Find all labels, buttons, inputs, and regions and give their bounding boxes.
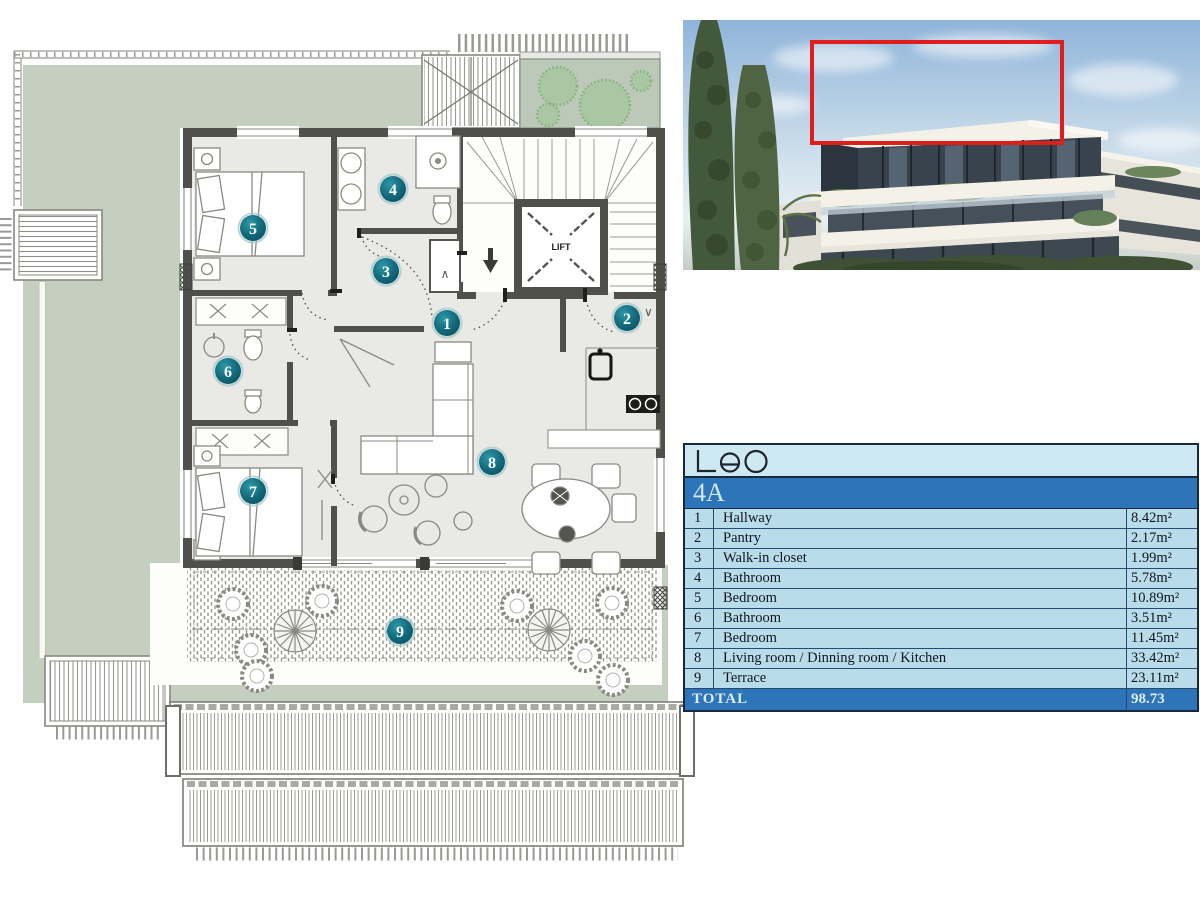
- room-name: Bedroom: [714, 629, 1126, 648]
- room-area: 11.45m²: [1126, 629, 1197, 648]
- room-area: 1.99m²: [1126, 549, 1197, 568]
- room-name: Pantry: [714, 529, 1126, 548]
- garden-path: [39, 282, 46, 658]
- total-row: TOTAL 98.73: [685, 689, 1197, 710]
- room-number: 7: [685, 629, 714, 648]
- room-number: 1: [685, 509, 714, 528]
- table-row: 9Terrace23.11m²: [685, 669, 1197, 689]
- table-row: 5Bedroom10.89m²: [685, 589, 1197, 609]
- building-photo: [683, 20, 1200, 270]
- room-number: 4: [685, 569, 714, 588]
- room-number: 2: [685, 529, 714, 548]
- table-row: 2Pantry2.17m²: [685, 529, 1197, 549]
- room-area: 33.42m²: [1126, 649, 1197, 668]
- room-name: Bedroom: [714, 589, 1126, 608]
- svg-text:4: 4: [389, 182, 397, 199]
- room-marker-3: 3: [372, 257, 401, 286]
- room-rows: 1Hallway8.42m²2Pantry2.17m²3Walk-in clos…: [685, 509, 1197, 689]
- room-area: 23.11m²: [1126, 669, 1197, 688]
- room-marker-6: 6: [214, 357, 243, 386]
- pantry-glyph: ∨: [644, 305, 653, 319]
- room-name: Terrace: [714, 669, 1126, 688]
- room-number: 5: [685, 589, 714, 608]
- table-row: 3Walk-in closet1.99m²: [685, 549, 1197, 569]
- svg-text:9: 9: [396, 624, 404, 641]
- lift: LIFT: [518, 203, 604, 291]
- room-name: Living room / Dinning room / Kitchen: [714, 649, 1126, 668]
- floor-plan: LIFT: [0, 0, 700, 900]
- svg-text:7: 7: [249, 484, 257, 501]
- unit-label-text: 4A: [693, 478, 725, 507]
- svg-text:1: 1: [443, 316, 451, 333]
- area-table: 4A 1Hallway8.42m²2Pantry2.17m²3Walk-in c…: [683, 443, 1199, 712]
- svg-text:2: 2: [623, 311, 631, 328]
- top-planter: [520, 52, 660, 130]
- room-marker-7: 7: [239, 477, 268, 506]
- room-number: 9: [685, 669, 714, 688]
- room-name: Bathroom: [714, 609, 1126, 628]
- room-name: Bathroom: [714, 569, 1126, 588]
- room-marker-1: 1: [433, 309, 462, 338]
- table-row: 4Bathroom5.78m²: [685, 569, 1197, 589]
- pergola-upper: [166, 702, 694, 776]
- table-row: 6Bathroom3.51m²: [685, 609, 1197, 629]
- total-label: TOTAL: [685, 689, 1126, 710]
- room-area: 10.89m²: [1126, 589, 1197, 608]
- left-deck: [5, 210, 102, 280]
- unit-label: 4A: [685, 478, 1197, 509]
- leo-logo: [692, 448, 778, 474]
- svg-text:8: 8: [488, 455, 496, 472]
- closet3: ∧: [430, 240, 460, 292]
- room-marker-4: 4: [379, 175, 408, 204]
- total-value: 98.73: [1126, 689, 1197, 710]
- room-number: 6: [685, 609, 714, 628]
- svg-text:6: 6: [224, 364, 232, 381]
- room-number: 8: [685, 649, 714, 668]
- room-area: 2.17m²: [1126, 529, 1197, 548]
- logo-row: [685, 445, 1197, 478]
- svg-text:3: 3: [382, 264, 390, 281]
- room-name: Hallway: [714, 509, 1126, 528]
- room-marker-9: 9: [386, 617, 415, 646]
- room-marker-5: 5: [239, 214, 268, 243]
- room-area: 8.42m²: [1126, 509, 1197, 528]
- room-area: 5.78m²: [1126, 569, 1197, 588]
- closet-glyph: ∧: [441, 267, 450, 281]
- room-number: 3: [685, 549, 714, 568]
- lift-label: LIFT: [552, 242, 571, 252]
- apartment-unit: LIFT: [180, 126, 667, 609]
- pergola-lower: [183, 779, 683, 854]
- svg-text:5: 5: [249, 221, 257, 238]
- table-row: 8Living room / Dinning room / Kitchen33.…: [685, 649, 1197, 669]
- room-marker-8: 8: [478, 448, 507, 477]
- page: LIFT: [0, 0, 1200, 900]
- table-row: 1Hallway8.42m²: [685, 509, 1197, 529]
- table-row: 7Bedroom11.45m²: [685, 629, 1197, 649]
- room-name: Walk-in closet: [714, 549, 1126, 568]
- room-area: 3.51m²: [1126, 609, 1197, 628]
- room-marker-2: 2: [613, 304, 642, 333]
